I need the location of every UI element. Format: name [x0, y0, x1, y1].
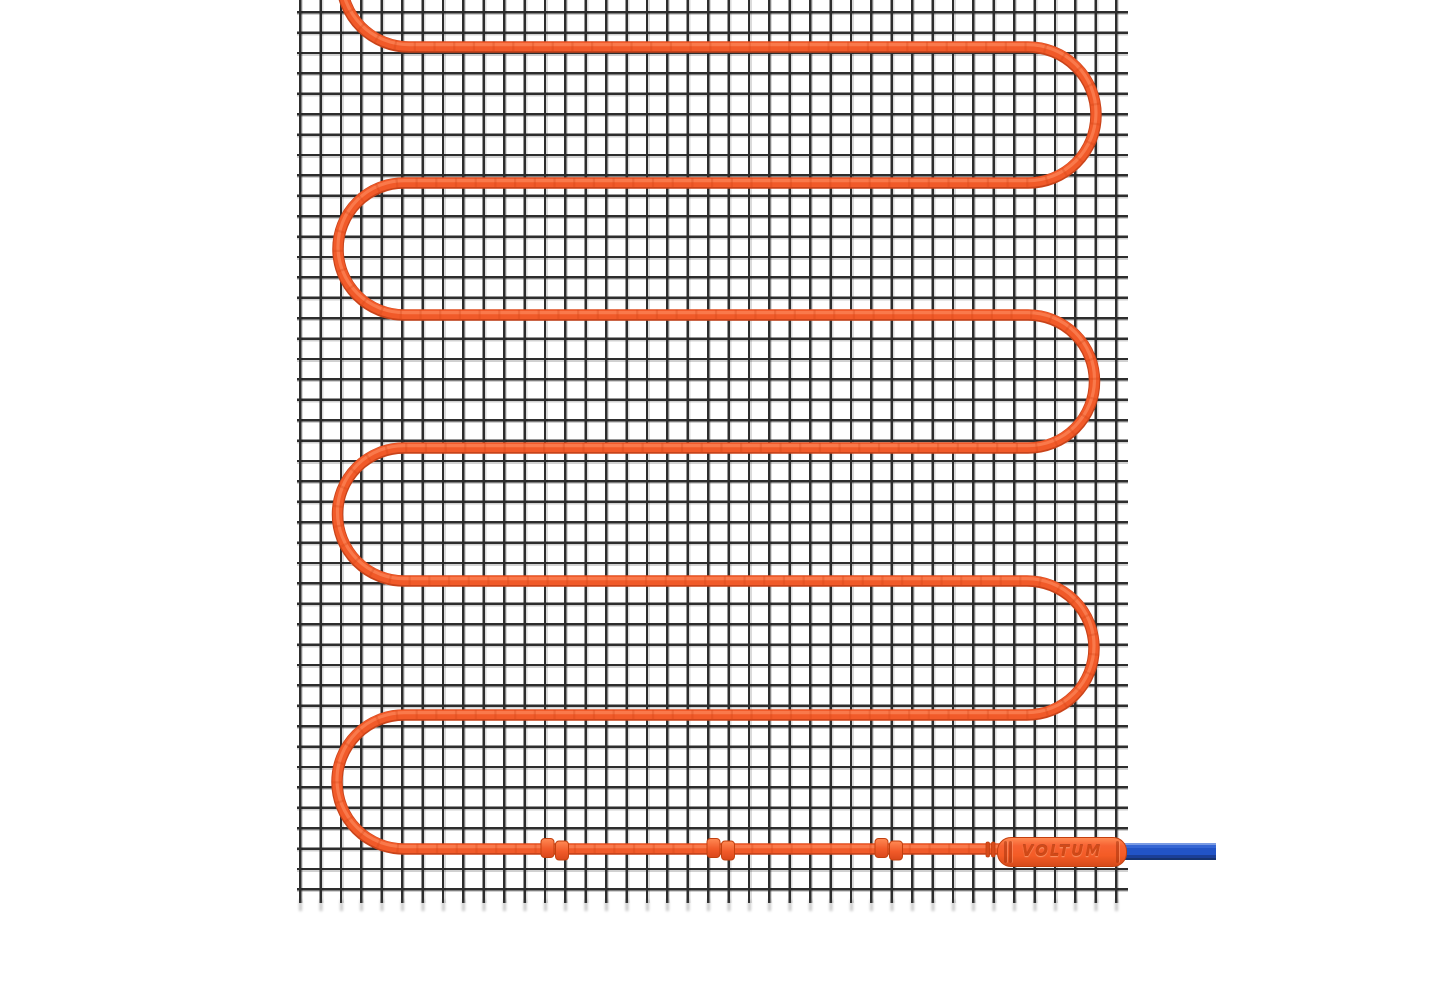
- cold-lead-cable: [1124, 843, 1216, 860]
- heating-cable: [337, 0, 1096, 849]
- product-image-stage: VOLTUM: [0, 0, 1429, 1000]
- connector-rib: [1116, 841, 1119, 863]
- connector-rib: [1009, 841, 1012, 863]
- connector-sleeve: VOLTUM: [997, 837, 1127, 867]
- connector-rib: [1004, 841, 1007, 863]
- connector-brand-label: VOLTUM: [1022, 844, 1103, 859]
